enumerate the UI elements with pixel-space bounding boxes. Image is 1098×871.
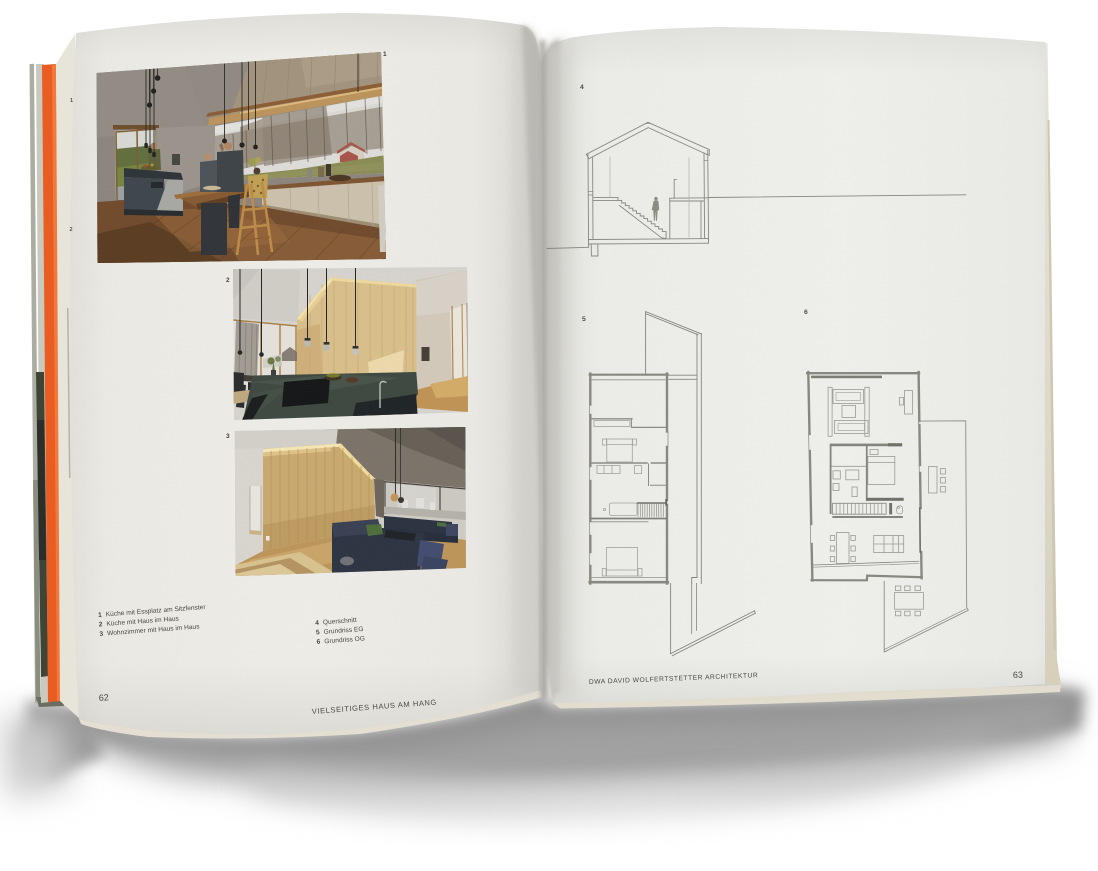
svg-text:1: 1	[70, 98, 73, 104]
